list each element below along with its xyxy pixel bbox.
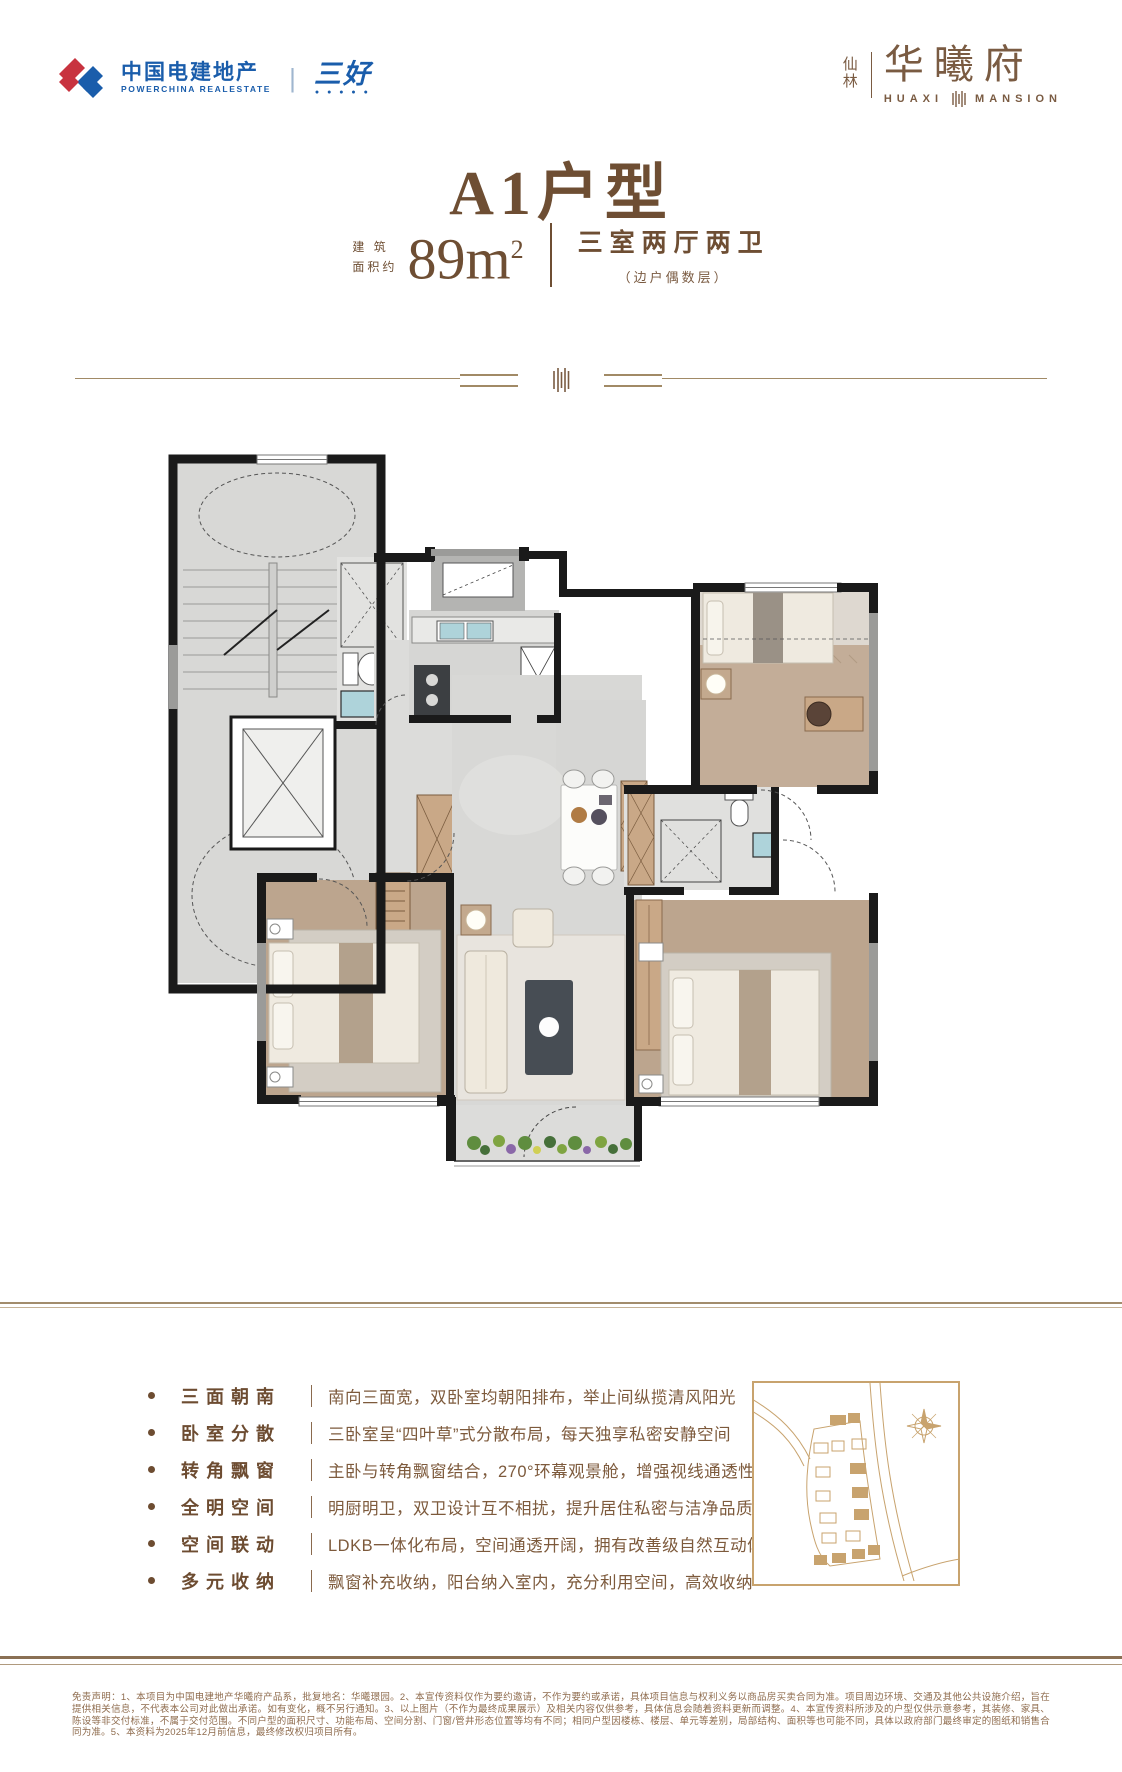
feature-row: 卧室分散 三卧室呈“四叶草”式分散布局，每天独享私密安静空间 [148,1414,781,1451]
bathroom-2 [624,785,777,890]
brand-location-char2: 林 [843,73,859,90]
bullet-icon [148,1577,155,1584]
disclaimer-text: 免责声明：1、本项目为中国电建地产华曦府产品系，批复地名：华曦璟园。2、本宣传资… [72,1692,1050,1739]
sanhao-badge: 三好 [314,61,372,87]
logo-separator: | [289,63,296,94]
feature-label: 全明空间 [181,1494,309,1520]
feature-label: 卧室分散 [181,1420,309,1446]
ornament-divider [0,368,1122,392]
logo-cn-text: 中国电建地产 [121,62,271,84]
brand-location-char1: 仙 [843,56,859,73]
rooms-note: （边户偶数层） [578,267,770,286]
feature-desc: 南向三面宽，双卧室均朝阳排布，举止间纵揽清风阳光 [328,1384,736,1408]
balcony [452,1105,642,1166]
feature-desc: 三卧室呈“四叶草”式分散布局，每天独享私密安静空间 [328,1421,731,1445]
bullet-icon [148,1429,155,1436]
kitchen-bay-window [431,553,525,611]
brand-en-right: MANSION [975,93,1062,105]
area-value: 89m2 [407,222,523,287]
feature-desc: 主卧与转角飘窗结合，270°环幕观景舱，增强视线通透性 [328,1458,755,1482]
section-divider-bottom [0,1307,1122,1308]
living-dining [452,675,647,1105]
feature-label: 多元收纳 [181,1568,309,1594]
logo-en-text: POWERCHINA REALESTATE [121,84,271,94]
feature-row: 转角飘窗 主卧与转角飘窗结合，270°环幕观景舱，增强视线通透性 [148,1451,781,1488]
feature-row: 全明空间 明厨明卫，双卫设计互不相扰，提升居住私密与洁净品质 [148,1488,781,1525]
feature-desc: 明厨明卫，双卫设计互不相扰，提升居住私密与洁净品质 [328,1495,753,1519]
feature-row: 三面朝南 南向三面宽，双卧室均朝阳排布，举止间纵揽清风阳光 [148,1377,781,1414]
feature-label: 转角飘窗 [181,1457,309,1483]
rooms-label: 三室两厅两卫 [578,223,770,259]
site-map [752,1381,960,1586]
page-title: A1户型 [0,142,1122,232]
brand-divider [871,52,872,98]
feature-label: 空间联动 [181,1531,309,1557]
brand-en-left: HUAXI [884,93,943,105]
feature-divider [311,1459,312,1481]
area-prefix-1: 建 筑 [352,237,397,257]
feature-divider [311,1385,312,1407]
spec-divider [550,223,552,287]
section-divider-top [0,1302,1122,1304]
feature-divider [311,1496,312,1518]
developer-logo: 中国电建地产 POWERCHINA REALESTATE | 三好 ● ● ● … [55,52,372,104]
feature-row: 多元收纳 飘窗补充收纳，阳台纳入室内，充分利用空间，高效收纳 [148,1562,781,1599]
footer-divider-thick [0,1656,1122,1659]
elevator [231,717,335,849]
feature-desc: 飘窗补充收纳，阳台纳入室内，充分利用空间，高效收纳 [328,1569,753,1593]
feature-divider [311,1570,312,1592]
bedroom-right [634,900,872,1102]
brand-name: 华曦府 [884,42,1062,88]
feature-divider [311,1422,312,1444]
spec-row: 建 筑 面积约 89m2 三室两厅两卫 （边户偶数层） [0,222,1122,287]
bullet-icon [148,1503,155,1510]
area-prefix-2: 面积约 [352,257,397,277]
sanhao-dots: ● ● ● ● ● [314,89,372,96]
bullet-icon [148,1392,155,1399]
feature-row: 空间联动 LDKB一体化布局，空间通透开阔，拥有改善级自然互动体验 [148,1525,781,1562]
feature-divider [311,1533,312,1555]
floor-plan [168,395,880,1170]
feature-label: 三面朝南 [181,1383,309,1409]
powerchina-logo-icon [55,52,107,104]
footer-divider-thin [0,1664,1122,1665]
bedroom-top [697,591,872,787]
feature-list: 三面朝南 南向三面宽，双卧室均朝阳排布，举止间纵揽清风阳光 卧室分散 三卧室呈“… [148,1377,781,1599]
area-superscript: 2 [511,235,524,264]
feature-desc: LDKB一体化布局，空间通透开阔，拥有改善级自然互动体验 [328,1532,781,1556]
bullet-icon [148,1466,155,1473]
poster-page: 中国电建地产 POWERCHINA REALESTATE | 三好 ● ● ● … [0,0,1122,1772]
project-brand: 仙 林 华曦府 HUAXI MANSION [843,42,1062,107]
bullet-icon [148,1540,155,1547]
seal-icon [951,91,967,107]
seal-icon [551,368,571,392]
